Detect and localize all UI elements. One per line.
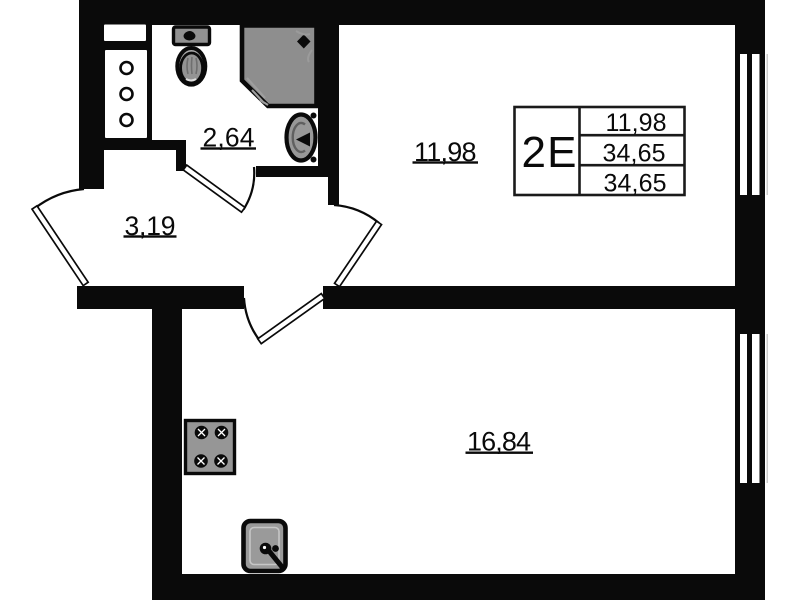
svg-text:34,65: 34,65 [603,140,666,168]
svg-text:34,65: 34,65 [604,169,667,197]
svg-text:11,98: 11,98 [606,109,667,137]
svg-text:2E: 2E [522,128,577,177]
